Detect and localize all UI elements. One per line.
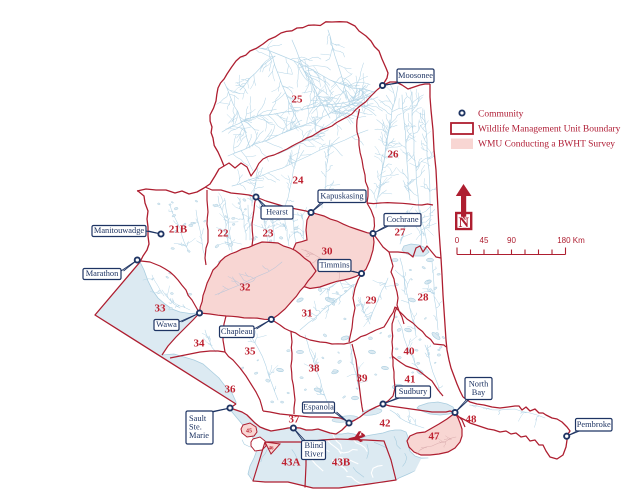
svg-text:34: 34 (194, 338, 206, 350)
svg-text:47: 47 (429, 431, 441, 443)
svg-text:32: 32 (240, 282, 252, 294)
svg-text:33: 33 (155, 303, 167, 315)
svg-text:31: 31 (302, 308, 313, 320)
svg-text:45: 45 (246, 429, 252, 435)
svg-text:WMU Conducting a BWHT Survey: WMU Conducting a BWHT Survey (478, 140, 615, 150)
svg-text:38: 38 (309, 363, 321, 375)
svg-text:Manitouwadge: Manitouwadge (94, 226, 145, 235)
svg-text:Community: Community (478, 110, 524, 120)
svg-text:Kapuskasing: Kapuskasing (320, 191, 364, 200)
svg-text:23: 23 (263, 228, 275, 240)
svg-text:43B: 43B (332, 457, 351, 469)
svg-text:21B: 21B (169, 224, 188, 236)
svg-text:Hearst: Hearst (266, 208, 289, 217)
svg-text:Wildlife Management Unit Bound: Wildlife Management Unit Boundary (478, 124, 621, 135)
svg-text:40: 40 (404, 346, 416, 358)
svg-text:Sudbury: Sudbury (399, 387, 428, 396)
svg-text:41: 41 (405, 374, 416, 386)
svg-text:Cochrane: Cochrane (386, 215, 418, 224)
svg-text:43A: 43A (282, 457, 301, 469)
svg-text:42: 42 (380, 418, 392, 430)
svg-text:28: 28 (418, 292, 430, 304)
svg-text:River: River (305, 449, 324, 458)
svg-text:Timmins: Timmins (320, 261, 350, 270)
svg-text:48: 48 (466, 414, 478, 426)
svg-text:Wawa: Wawa (156, 320, 177, 329)
svg-text:35: 35 (245, 346, 257, 358)
svg-text:Chapleau: Chapleau (221, 327, 253, 336)
svg-text:36: 36 (225, 384, 237, 396)
svg-text:Moosonee: Moosonee (398, 71, 433, 80)
svg-text:26: 26 (388, 149, 400, 161)
svg-text:90: 90 (507, 236, 516, 245)
svg-text:24: 24 (293, 175, 305, 187)
svg-text:37: 37 (289, 414, 301, 426)
svg-text:Espanola: Espanola (303, 403, 334, 412)
svg-text:27: 27 (395, 227, 407, 239)
svg-text:39: 39 (357, 373, 369, 385)
svg-text:Marie: Marie (189, 431, 209, 440)
svg-text:22: 22 (218, 228, 230, 240)
svg-text:Pembroke: Pembroke (577, 420, 611, 429)
svg-text:Bay: Bay (472, 388, 486, 397)
svg-text:180 Km: 180 Km (557, 236, 585, 245)
svg-text:46: 46 (269, 447, 275, 452)
svg-text:45: 45 (480, 236, 489, 245)
svg-text:N: N (459, 215, 470, 231)
svg-text:Marathon: Marathon (86, 269, 119, 278)
svg-text:25: 25 (292, 94, 304, 106)
svg-text:0: 0 (455, 236, 460, 245)
svg-text:29: 29 (366, 295, 378, 307)
svg-text:30: 30 (322, 246, 334, 258)
